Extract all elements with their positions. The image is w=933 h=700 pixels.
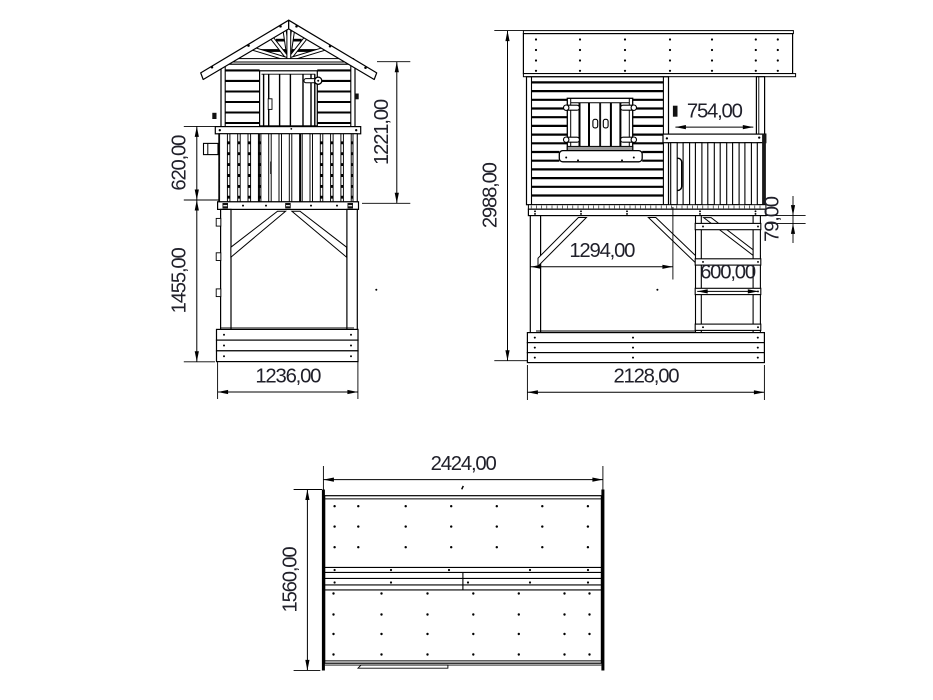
svg-text:1455,00: 1455,00: [169, 248, 191, 314]
svg-text:2988,00: 2988,00: [480, 162, 502, 228]
svg-text:2424,00: 2424,00: [431, 453, 497, 475]
svg-text:600,00: 600,00: [700, 262, 756, 284]
svg-text:1294,00: 1294,00: [569, 240, 635, 262]
svg-text:620,00: 620,00: [169, 135, 191, 191]
svg-text:1560,00: 1560,00: [280, 547, 302, 613]
svg-text:1236,00: 1236,00: [255, 365, 321, 387]
svg-text:1221,00: 1221,00: [371, 99, 393, 165]
svg-text:79,00: 79,00: [762, 196, 784, 242]
svg-text:2128,00: 2128,00: [613, 366, 679, 388]
svg-text:754,00: 754,00: [687, 100, 743, 122]
